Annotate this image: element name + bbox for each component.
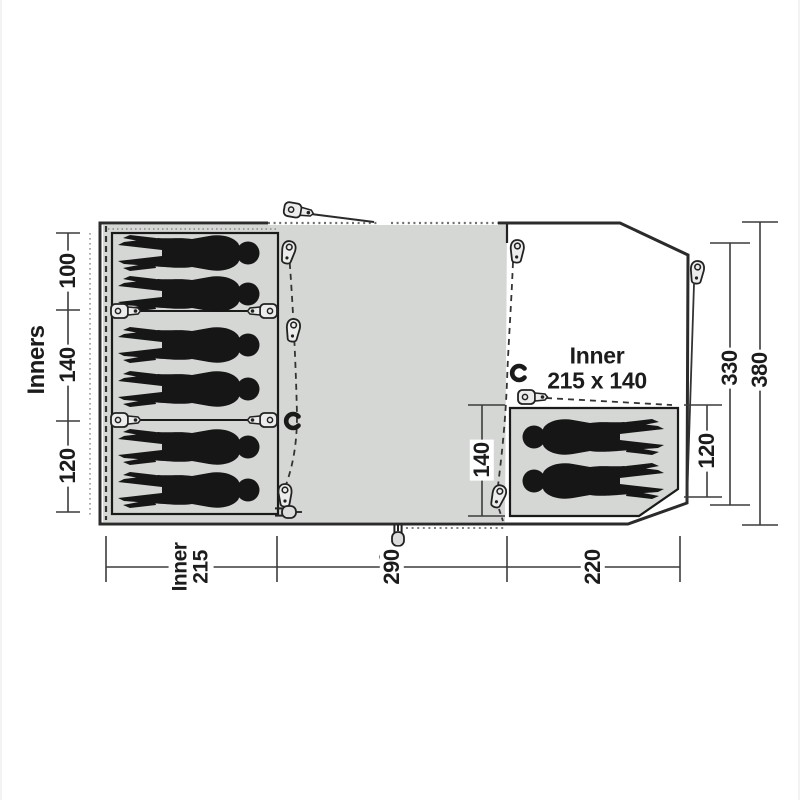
porch-inner-size-label: Inner 215 x 140: [547, 344, 647, 395]
zip-pull-icon: [278, 484, 291, 507]
dim-label-120-left: 120: [56, 445, 80, 486]
floorplan-drawing: [0, 0, 800, 800]
dim-label-330: 330: [718, 347, 742, 388]
guyline: [311, 214, 374, 222]
dim-label-380: 380: [748, 349, 772, 390]
guyline-peg-icon: [283, 202, 314, 221]
dim-label-220: 220: [581, 546, 605, 587]
dim-label-100: 100: [56, 250, 80, 291]
dim-label-140-left: 140: [56, 344, 80, 385]
tent-floorplan-diagram: Inners 100 140 120 Inner 215 290 220 140…: [0, 0, 800, 800]
dim-label-140-porch: 140: [470, 439, 494, 480]
dim-label-290: 290: [380, 546, 404, 587]
dim-label-inner-215: Inner 215: [169, 540, 214, 595]
left-axis-label: Inners: [24, 322, 50, 397]
zip-pull-icon: [689, 260, 704, 284]
dim-label-120-right: 120: [695, 430, 719, 471]
